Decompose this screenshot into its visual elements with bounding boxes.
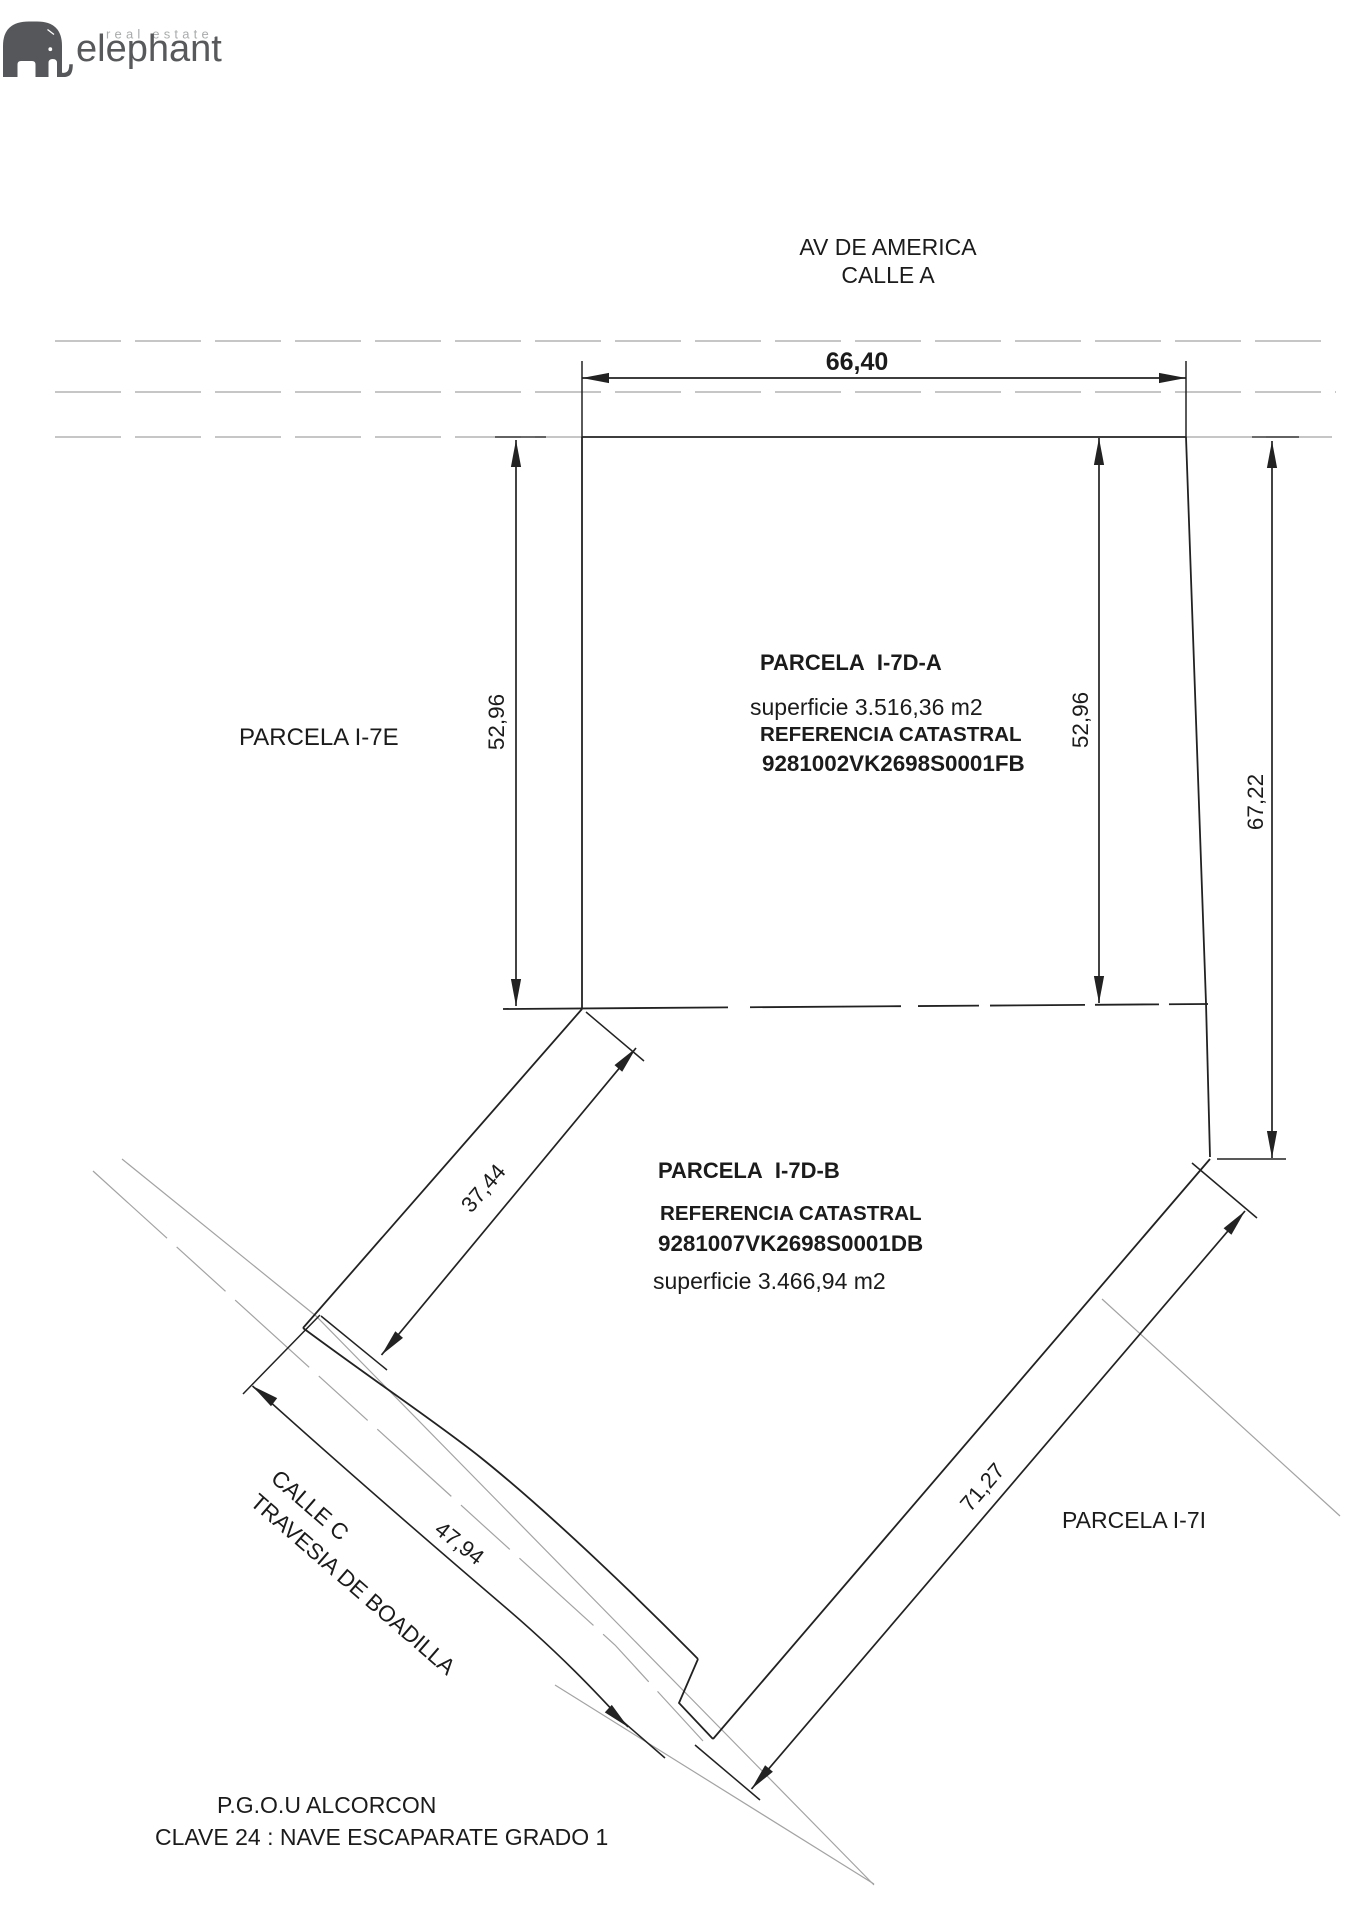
svg-text:AV DE AMERICA: AV DE AMERICA bbox=[799, 234, 977, 260]
svg-text:67,22: 67,22 bbox=[1243, 774, 1268, 830]
svg-text:CALLE A: CALLE A bbox=[841, 262, 935, 288]
svg-text:47,94: 47,94 bbox=[430, 1516, 489, 1570]
svg-text:superficie 3.516,36 m2: superficie 3.516,36 m2 bbox=[750, 694, 983, 720]
svg-text:PARCELA I-7E: PARCELA I-7E bbox=[239, 724, 399, 751]
svg-text:PARCELA I-7I: PARCELA I-7I bbox=[1062, 1507, 1206, 1533]
svg-text:REFERENCIA CATASTRAL: REFERENCIA CATASTRAL bbox=[660, 1202, 922, 1225]
svg-text:TRAVESIA DE BOADILLA: TRAVESIA DE BOADILLA bbox=[246, 1489, 460, 1680]
svg-text:superficie 3.466,94 m2: superficie 3.466,94 m2 bbox=[653, 1268, 886, 1294]
svg-text:9281007VK2698S0001DB: 9281007VK2698S0001DB bbox=[658, 1231, 923, 1256]
svg-text:PARCELA I-7D-A: PARCELA I-7D-A bbox=[760, 650, 942, 675]
svg-text:REFERENCIA CATASTRAL: REFERENCIA CATASTRAL bbox=[760, 723, 1022, 746]
svg-text:elephant: elephant bbox=[76, 28, 222, 70]
svg-text:P.G.O.U ALCORCON: P.G.O.U ALCORCON bbox=[217, 1792, 436, 1818]
svg-text:9281002VK2698S0001FB: 9281002VK2698S0001FB bbox=[762, 751, 1025, 776]
svg-text:52,96: 52,96 bbox=[1068, 692, 1093, 748]
svg-text:PARCELA I-7D-B: PARCELA I-7D-B bbox=[658, 1158, 840, 1183]
svg-text:66,40: 66,40 bbox=[826, 348, 889, 376]
svg-text:CLAVE 24 : NAVE ESCAPARATE GRA: CLAVE 24 : NAVE ESCAPARATE GRADO 1 bbox=[155, 1824, 608, 1850]
svg-text:71,27: 71,27 bbox=[955, 1458, 1010, 1516]
svg-text:52,96: 52,96 bbox=[484, 694, 509, 750]
